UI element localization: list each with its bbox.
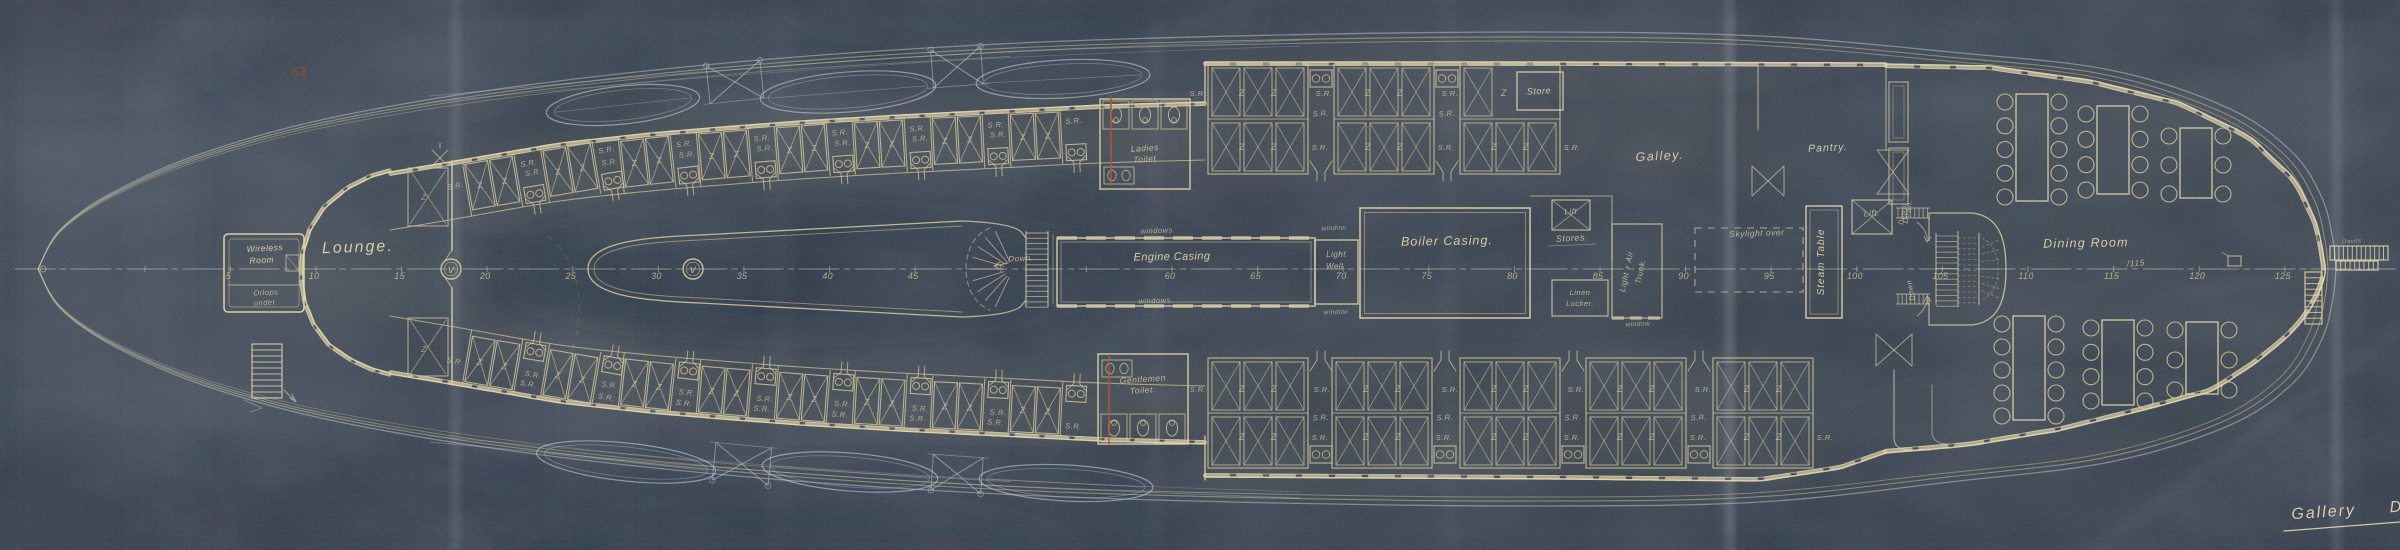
svg-text:Z: Z [941,136,948,146]
svg-text:Galley.: Galley. [1635,148,1684,165]
svg-text:Dining Room: Dining Room [2043,235,2129,250]
svg-text:Z: Z [1364,142,1371,152]
svg-text:Z: Z [1775,432,1782,442]
svg-text:Z: Z [1775,384,1782,394]
svg-text:S.R.: S.R. [675,138,692,149]
svg-text:S.R.: S.R. [675,398,692,409]
svg-text:Z: Z [1364,88,1371,98]
svg-text:60: 60 [1165,271,1176,281]
svg-text:100: 100 [1847,271,1863,281]
svg-text:S.R.: S.R. [987,120,1004,130]
svg-text:20: 20 [479,271,491,281]
svg-text:115: 115 [2104,271,2120,281]
svg-text:Z: Z [1270,384,1277,394]
svg-text:S.R.: S.R. [909,124,926,134]
svg-text:Z: Z [707,386,715,397]
svg-text:S.R.: S.R. [1564,433,1581,442]
svg-text:Light: Light [1326,250,1346,259]
svg-text:Stores.: Stores. [1556,232,1588,244]
svg-text:S.R.: S.R. [1817,433,1834,442]
svg-text:120: 120 [2189,271,2205,281]
svg-text:window: window [1323,309,1349,317]
svg-text:Well.: Well. [1326,262,1346,271]
svg-text:Z: Z [863,397,871,407]
svg-text:Z: Z [1743,432,1750,442]
svg-text:S.R.: S.R. [1690,413,1707,423]
svg-text:Z: Z [863,140,871,150]
svg-text:V: V [448,265,455,275]
svg-text:Z: Z [941,401,948,411]
svg-text:Z: Z [966,134,973,144]
svg-text:S.R.: S.R. [1065,421,1082,431]
svg-text:windows.: windows. [1138,295,1173,305]
svg-text:Lounge.: Lounge. [322,238,394,257]
svg-text:Orlops: Orlops [253,287,279,297]
svg-text:S.R.: S.R. [1436,413,1453,423]
svg-text:window: window [1625,321,1651,329]
svg-text:S.R.: S.R. [1312,143,1329,152]
svg-text:Z: Z [1362,432,1369,442]
svg-text:Z: Z [1490,142,1497,152]
svg-text:Skylight over: Skylight over [1729,227,1785,239]
svg-text:Locker.: Locker. [1566,299,1594,308]
svg-text:S.R.: S.R. [1316,89,1333,98]
svg-text:Z: Z [708,151,716,162]
svg-text:S.R.: S.R. [1312,109,1329,119]
svg-text:Z: Z [1394,432,1401,442]
svg-text:90: 90 [1678,271,1689,281]
svg-text:S.R.: S.R. [756,143,773,153]
svg-text:S.R.: S.R. [1442,89,1459,98]
svg-text:Room: Room [249,254,274,265]
svg-text:S.R.: S.R. [1190,385,1207,394]
svg-text:S.R.: S.R. [1065,116,1082,126]
svg-text:Lift: Lift [1564,207,1578,217]
svg-text:Z: Z [810,394,818,405]
svg-text:Z: Z [1396,88,1403,98]
svg-text:Z: Z [1044,130,1051,140]
svg-text:45: 45 [908,271,919,281]
svg-text:/115: /115 [2126,258,2145,269]
svg-text:Store: Store [1527,85,1552,96]
svg-text:S.R.: S.R. [1436,433,1453,442]
svg-text:Z: Z [1522,384,1529,394]
svg-text:Z: Z [1490,432,1497,442]
svg-text:Z: Z [1270,432,1277,442]
svg-text:Wireless: Wireless [246,242,283,254]
svg-text:S.R.: S.R. [990,130,1007,140]
svg-text:30: 30 [651,271,662,281]
svg-text:Z: Z [785,145,793,156]
svg-text:D: D [2389,499,2400,517]
svg-text:Z: Z [420,344,427,354]
svg-text:Boiler Casing.: Boiler Casing. [1401,233,1493,249]
svg-text:Z: Z [1616,384,1623,394]
svg-text:Toilet: Toilet [1133,153,1157,165]
svg-text:Toilet.: Toilet. [1130,384,1157,396]
svg-text:Z: Z [732,388,740,399]
svg-text:Z: Z [1743,384,1750,394]
svg-text:window: window [1321,225,1347,233]
svg-text:S.R.: S.R. [678,387,695,397]
svg-text:Z: Z [1270,142,1277,152]
svg-text:Z: Z [810,143,818,154]
svg-text:70: 70 [1336,271,1347,281]
svg-text:S.R.: S.R. [831,127,848,137]
svg-text:35: 35 [737,271,748,281]
svg-text:Engine Casing: Engine Casing [1133,250,1210,263]
svg-text:S.R.: S.R. [1568,385,1585,394]
svg-text:S.R.: S.R. [1312,433,1329,442]
svg-text:Linen: Linen [1570,288,1591,297]
svg-text:125: 125 [2275,271,2292,281]
svg-text:15: 15 [394,271,405,281]
svg-text:Ladies: Ladies [1130,142,1159,154]
svg-text:Z: Z [966,402,973,412]
svg-text:S.R.: S.R. [1312,413,1329,423]
svg-text:Z: Z [1648,432,1655,442]
svg-text:Down.: Down. [1008,253,1034,263]
svg-text:S.R.: S.R. [678,149,695,159]
svg-text:63: 63 [290,63,308,81]
svg-text:Z: Z [1648,384,1655,394]
svg-text:Z: Z [732,149,740,160]
svg-text:S.R.: S.R. [912,134,929,144]
svg-text:Z: Z [1522,142,1529,152]
svg-text:Z: Z [1238,88,1245,98]
svg-text:Z: Z [1270,88,1277,98]
svg-text:S.R.: S.R. [601,379,618,390]
svg-text:S.R.: S.R. [1438,109,1455,119]
svg-text:S.R.: S.R. [834,399,851,409]
svg-text:10: 10 [309,271,320,281]
svg-text:S.R.: S.R. [1438,143,1455,152]
svg-text:Pantry.: Pantry. [1808,141,1848,155]
svg-text:Z: Z [785,392,793,403]
svg-text:Z: Z [1490,384,1497,394]
svg-text:S.R.: S.R. [1314,385,1331,394]
svg-text:Z: Z [1616,432,1623,442]
svg-text:windows.: windows. [1140,225,1175,235]
svg-text:Z: Z [1500,88,1507,98]
svg-text:Z: Z [1362,384,1369,394]
svg-text:Z: Z [1522,432,1529,442]
svg-text:S.R.: S.R. [601,157,618,168]
svg-text:Lift.: Lift. [1863,207,1880,218]
svg-text:S.R.: S.R. [987,417,1004,427]
svg-text:S.R.: S.R. [1564,413,1581,423]
svg-text:under.: under. [254,297,278,307]
svg-text:Z: Z [1044,406,1051,416]
svg-text:65: 65 [1250,271,1261,281]
svg-text:Steam Table: Steam Table [1816,229,1827,296]
svg-text:95: 95 [1764,271,1775,281]
svg-text:S.R.: S.R. [909,413,926,423]
svg-text:80: 80 [1507,271,1518,281]
svg-text:V: V [690,265,697,275]
svg-text:Z: Z [1019,405,1026,415]
svg-text:S.R.: S.R. [1442,385,1459,394]
svg-text:S.R.: S.R. [1190,89,1207,98]
svg-text:S.R.: S.R. [753,133,770,143]
svg-text:Z: Z [1238,142,1245,152]
svg-text:110: 110 [2018,271,2033,281]
svg-text:Z: Z [1238,384,1245,394]
svg-text:Z: Z [1238,432,1245,442]
svg-text:Z: Z [1019,132,1026,142]
svg-text:40: 40 [822,271,833,281]
svg-text:Z: Z [1394,384,1401,394]
svg-text:S.R.: S.R. [1564,143,1581,152]
svg-text:S.R.: S.R. [831,409,848,419]
svg-text:S.R.: S.R. [834,138,851,148]
svg-text:S.R.: S.R. [1695,385,1712,394]
svg-text:Z: Z [1396,142,1403,152]
svg-text:S.R.: S.R. [753,404,770,414]
svg-text:S.R.: S.R. [1690,433,1707,442]
svg-text:25: 25 [564,271,576,281]
svg-text:S.R.: S.R. [990,407,1007,417]
svg-text:Z: Z [888,138,896,148]
svg-text:Z: Z [888,398,896,408]
svg-text:S.R.: S.R. [756,394,773,404]
svg-text:75: 75 [1421,271,1432,281]
svg-text:S.R.: S.R. [912,404,929,414]
